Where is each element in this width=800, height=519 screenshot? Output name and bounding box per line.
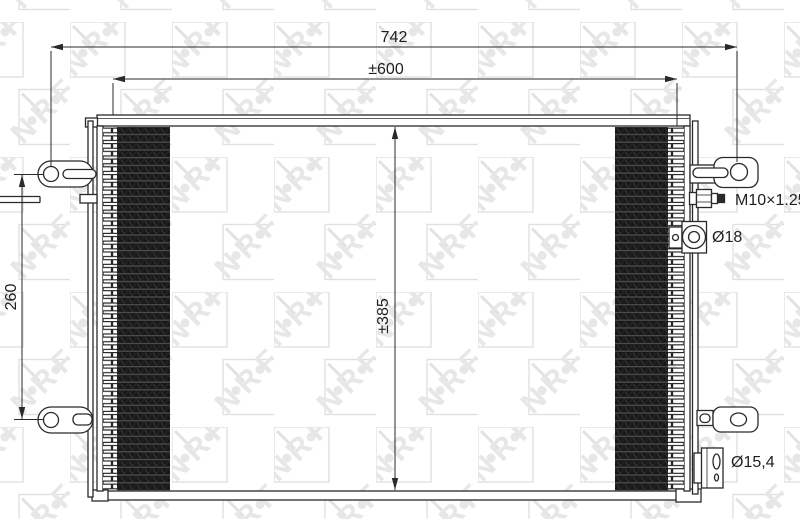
fitting-tip	[719, 195, 725, 203]
label-top-port-diameter: Ø18	[712, 229, 742, 246]
dim-label-385: ±385	[375, 298, 392, 334]
label-thread-spec: M10×1.25	[735, 192, 800, 209]
mount-hole-bottom-left	[44, 413, 59, 428]
core-right-fins	[615, 127, 668, 491]
mount-slot-bottom-right	[731, 413, 747, 426]
mount-bracket-top-left	[38, 161, 96, 187]
dim-label-260: 260	[3, 284, 20, 311]
bottom-tank	[92, 489, 701, 502]
condenser-drawing: NRF NRF	[0, 0, 800, 519]
core-left-fins	[117, 127, 170, 491]
right-tube-comb	[668, 127, 684, 491]
dim-label-742: 742	[381, 29, 408, 46]
top-tank	[97, 115, 690, 126]
left-tube-comb	[103, 127, 117, 491]
dim-label-600: ±600	[368, 61, 404, 78]
mount-hole-top-left	[44, 167, 59, 182]
mount-hole-top-right	[731, 164, 748, 181]
mount-bracket-bottom-left	[38, 407, 93, 433]
technical-drawing-canvas: NRF NRF	[0, 0, 800, 519]
left-header-step	[80, 195, 97, 204]
port-block-154	[694, 448, 723, 488]
label-bottom-port-diameter: Ø15,4	[731, 454, 775, 471]
